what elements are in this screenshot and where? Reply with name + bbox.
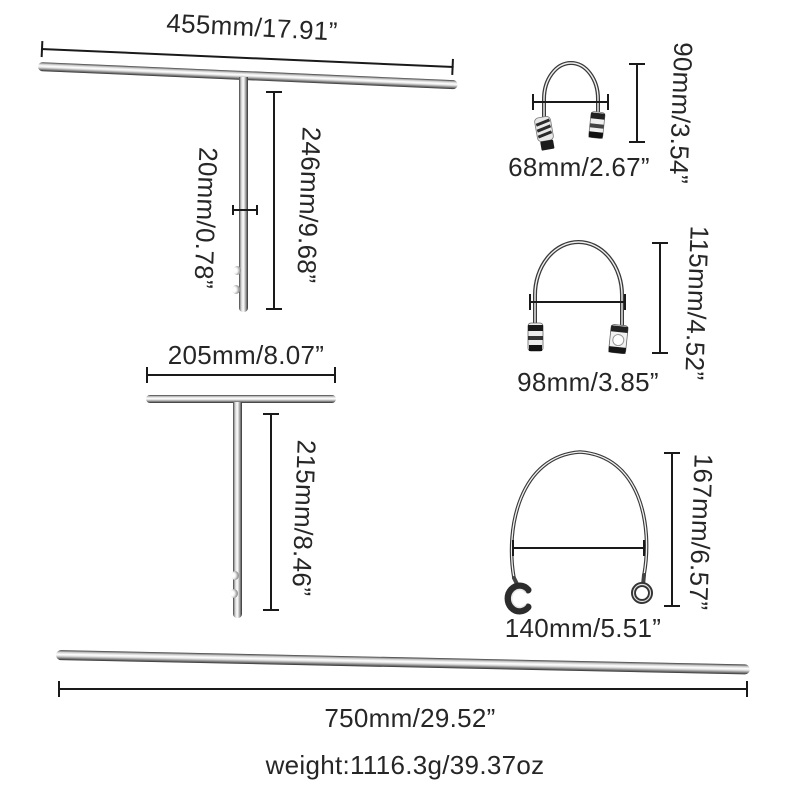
t-handle-small-stem-notch — [230, 589, 238, 598]
u-bow-medium-height-label: 115mm/4.52” — [681, 225, 712, 380]
u-bow-large-left-hook-highlight — [512, 590, 526, 608]
u-bow-small-wire-highlight — [544, 63, 598, 125]
u-bow-large-height-dimension-line — [671, 452, 673, 607]
u-bow-medium-height-dimension-line — [659, 242, 661, 354]
t-handle-large-width-label: 455mm/17.91” — [166, 10, 338, 45]
t-handle-small-height-dimension-line — [270, 413, 272, 611]
u-bow-medium-width-label: 98mm/3.85” — [517, 369, 659, 395]
straight-rod-length-dimension-line — [58, 688, 748, 690]
u-bow-medium-width-marker — [529, 301, 626, 303]
weight-label: weight:1116.3g/39.37oz — [266, 752, 545, 778]
t-handle-large-diameter-marker — [232, 209, 258, 211]
t-handle-large-height-label: 246mm/9.68” — [293, 126, 324, 283]
u-bow-small-height-label: 90mm/3.54” — [666, 42, 697, 185]
u-bow-large-figure — [502, 443, 658, 615]
u-bow-small-right-terminal — [589, 111, 606, 138]
u-bow-medium-wire — [535, 242, 622, 330]
u-bow-large-width-label: 140mm/5.51” — [505, 615, 661, 641]
t-handle-small-stem — [233, 402, 242, 618]
t-handle-large-diameter-label: 20mm/0.78” — [191, 147, 222, 290]
u-bow-large-width-marker — [512, 547, 645, 549]
product-dimensions-diagram: 455mm/17.91” 20mm/0.78” 246mm/9.68” 90mm… — [0, 0, 800, 800]
u-bow-medium-right-terminal — [608, 324, 628, 354]
u-bow-small-height-dimension-line — [636, 63, 638, 143]
straight-rod-length-label: 750mm/29.52” — [324, 705, 495, 731]
t-handle-small-width-dimension-line — [146, 374, 336, 376]
u-bow-small-width-label: 68mm/2.67” — [508, 154, 650, 180]
t-handle-large-stem-notch — [233, 266, 241, 275]
t-handle-small-stem-notch — [231, 571, 239, 580]
u-bow-medium-figure — [522, 235, 634, 357]
u-bow-large-right-ring-highlight — [634, 585, 651, 602]
u-bow-large-height-label: 167mm/6.57” — [685, 453, 716, 610]
t-handle-large-stem-notch — [232, 285, 240, 294]
u-bow-small-width-marker — [532, 101, 609, 103]
t-handle-small-height-label: 215mm/8.46” — [288, 439, 319, 596]
t-handle-large-stem — [239, 77, 248, 312]
u-bow-small-left-terminal — [534, 116, 555, 151]
u-bow-medium-left-terminal — [528, 323, 543, 351]
u-bow-large-wire — [512, 452, 647, 578]
t-handle-large-height-dimension-line — [273, 91, 275, 310]
u-bow-large-wire-highlight — [512, 452, 647, 578]
straight-rod — [56, 650, 750, 675]
t-handle-small-width-label: 205mm/8.07” — [168, 342, 324, 368]
